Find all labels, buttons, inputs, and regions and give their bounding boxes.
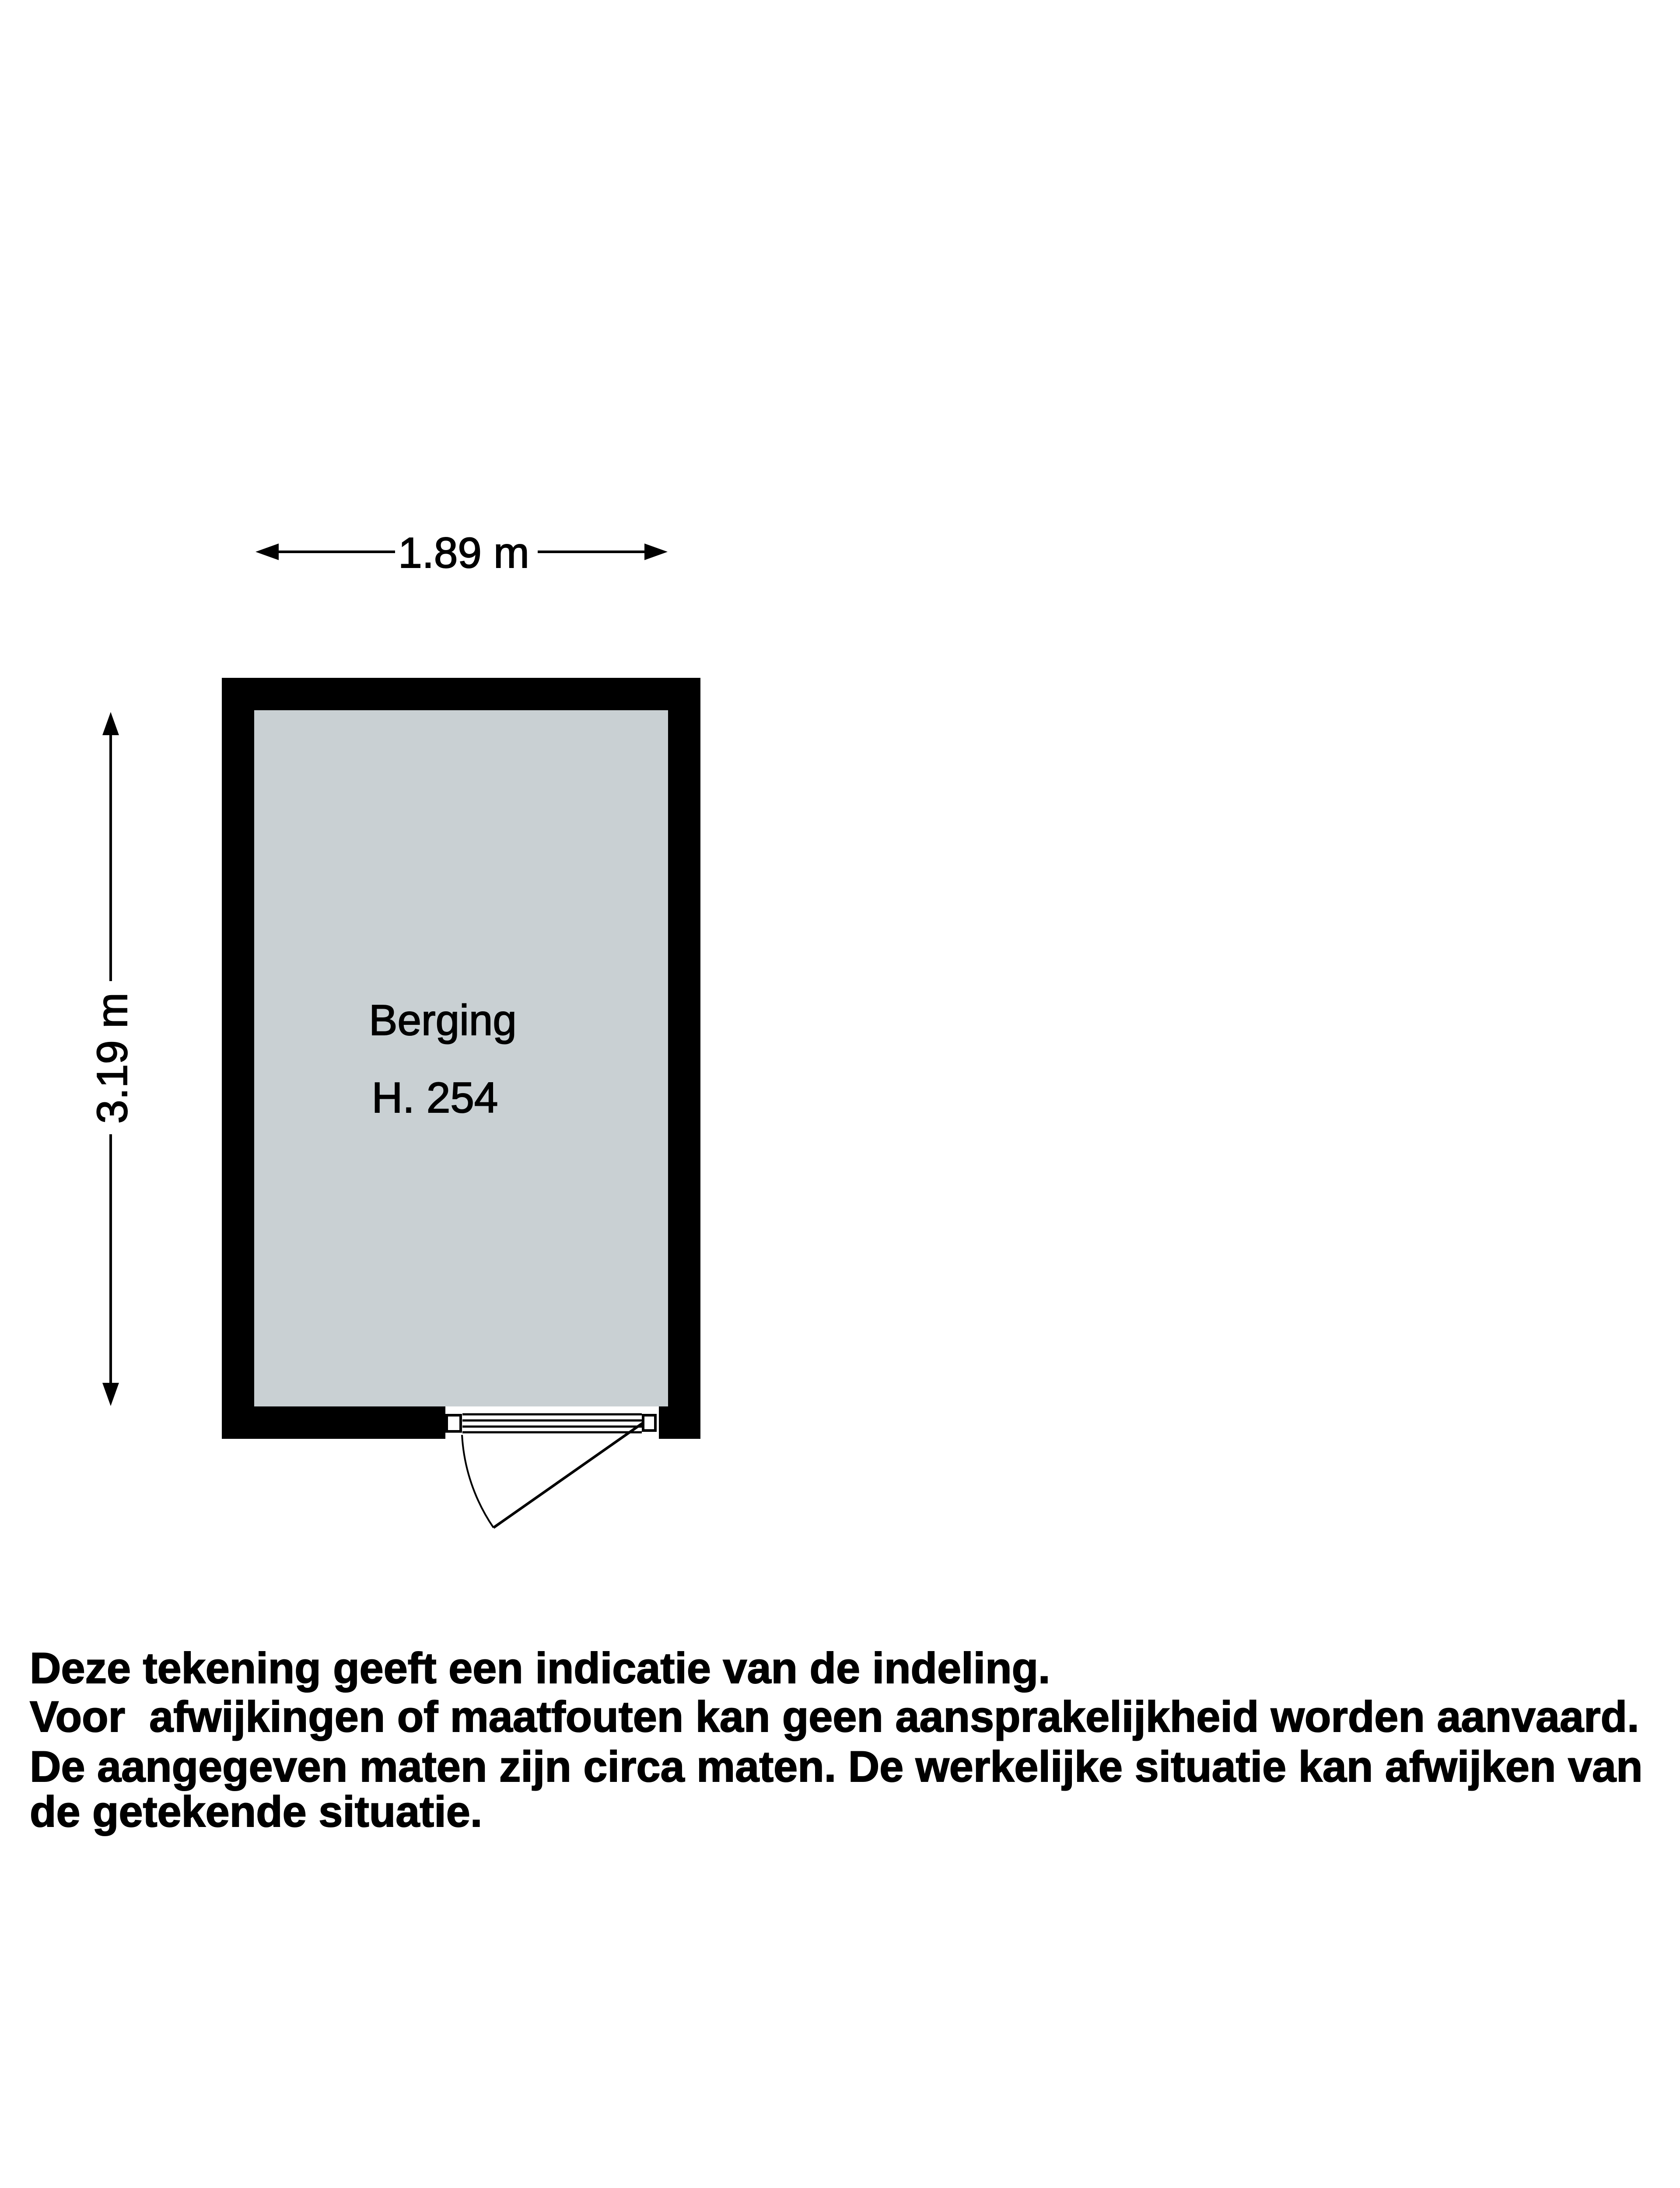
svg-text:Berging: Berging — [369, 996, 517, 1044]
svg-text:3.19 m: 3.19 m — [88, 992, 136, 1124]
svg-text:de getekende situatie.: de getekende situatie. — [30, 1787, 482, 1836]
svg-text:1.89 m: 1.89 m — [398, 529, 529, 577]
svg-text:H. 254: H. 254 — [372, 1073, 498, 1122]
svg-text:Deze tekening geeft een indica: Deze tekening geeft een indicatie van de… — [30, 1644, 1050, 1692]
svg-text:Voor afwijkingen of maatfoute: Voor afwijkingen of maatfouten kan geen … — [30, 1692, 1639, 1741]
svg-text:De aangegeven maten zijn circa: De aangegeven maten zijn circa maten. De… — [30, 1742, 1643, 1791]
